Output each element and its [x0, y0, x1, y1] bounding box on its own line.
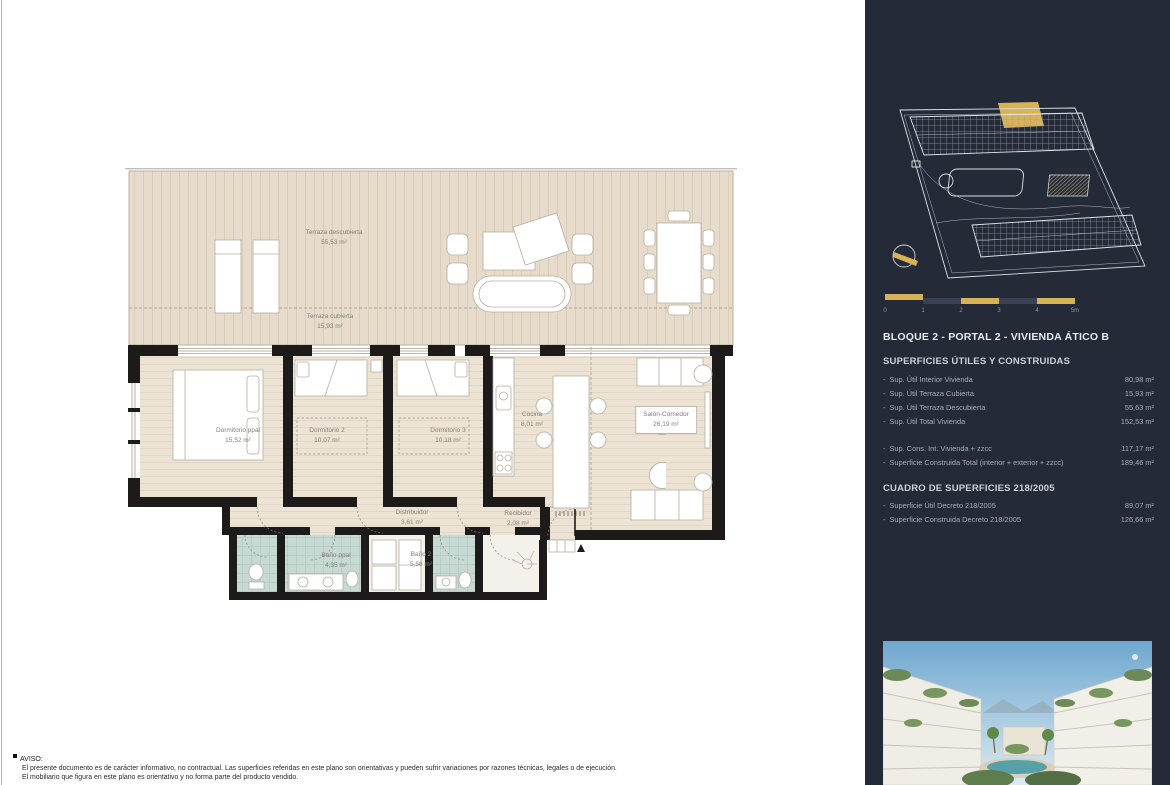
scale-tick: 1: [921, 308, 924, 314]
entry-step: [549, 540, 575, 552]
plan-sheet: Terraza descubierta55,53 m² Terraza cubi…: [0, 0, 1170, 785]
scale-tick: 4: [1035, 308, 1038, 314]
sun-lounger: [215, 240, 241, 313]
toilet: [249, 564, 263, 580]
entry-arrow-icon: [577, 544, 585, 552]
terrace-chair: [572, 263, 593, 284]
room-label-dormitorio-ppal: Dormitorio ppal15,52 m²: [216, 426, 260, 446]
building-block-top: [910, 113, 1094, 155]
area-row: - Superficie Construida Total (interior …: [883, 458, 1154, 467]
floor-plan: Terraza descubierta55,53 m² Terraza cubi…: [125, 168, 737, 608]
dining-table: [657, 223, 701, 303]
left-edge-line: [1, 0, 2, 785]
info-sidebar: 0 1 2 3 4 5m BLOQUE 2 - PORTAL 2 - VIVIE…: [865, 0, 1170, 785]
room-label-terraza-cubierta: Terraza cubierta15,93 m²: [307, 312, 354, 332]
sun-lounger: [253, 240, 279, 313]
tv-console: [705, 392, 710, 448]
terrace-chair: [572, 234, 593, 255]
stool: [590, 432, 606, 448]
side-table: [694, 473, 712, 491]
pillow: [247, 376, 259, 412]
nightstand: [371, 360, 382, 372]
sofa-top: [637, 358, 703, 386]
area-row: - Superficie Construida Decreto 218/2005…: [883, 515, 1154, 524]
area-row: - Sup. Útil Total Vivienda 152,53 m²: [883, 417, 1154, 426]
disclaimer-line: El mobiliario que figura en este plano e…: [22, 773, 773, 782]
unit-title: BLOQUE 2 - PORTAL 2 - VIVIENDA ÁTICO B: [883, 331, 1109, 343]
sofa-bottom: [631, 490, 703, 520]
area-row: - Sup. Útil Terraza Descubierta 55,63 m²: [883, 403, 1154, 412]
island-dining-table: [553, 376, 589, 508]
area-row: - Superficie Útil Decreto 218/2005 89,07…: [883, 501, 1154, 510]
disclaimer-heading: AVISO:: [20, 756, 43, 763]
side-table: [694, 365, 712, 383]
laundry-unit: [372, 566, 396, 590]
laundry-unit: [372, 540, 396, 564]
area-row: - Sup. Útil Interior Vivienda 80,98 m²: [883, 375, 1154, 384]
palm-tree: [1042, 729, 1054, 741]
room-label-salon-comedor: Salón-Comedor26,19 m²: [635, 406, 697, 434]
room-label-bano-2: Baño 25,56 m²: [410, 550, 432, 570]
bullet-square-icon: [13, 754, 17, 758]
scale-bar: 0 1 2 3 4 5m: [885, 294, 1077, 316]
scale-tick: 2: [959, 308, 962, 314]
room-label-recibidor: Recibidor2,08 m²: [504, 509, 531, 529]
terrace-chair: [447, 263, 468, 284]
stool: [590, 398, 606, 414]
double-sink: [289, 574, 343, 590]
building-block-bottom: [972, 215, 1141, 257]
room-label-bano-ppal: Baño ppal4,35 m²: [321, 551, 350, 571]
toilet: [459, 572, 471, 588]
room-label-terraza-descubierta: Terraza descubierta55,53 m²: [305, 228, 362, 248]
floor-plan-drawing: [125, 168, 737, 608]
toilet: [346, 571, 358, 587]
area-row: - Sup. Útil Terraza Cubierta 15,93 m²: [883, 389, 1154, 398]
section-heading-superficies: SUPERFICIES ÚTILES Y CONSTRUIDAS: [883, 356, 1070, 367]
area-row: - Sup. Cons. Int. Vivienda + zzcc 117,17…: [883, 444, 1154, 453]
room-label-dormitorio-2: Dormitorio 210,07 m²: [309, 426, 344, 446]
scale-tick: 0: [883, 308, 886, 314]
palm-tree: [987, 727, 999, 739]
stool: [536, 432, 552, 448]
room-label-cocina: Cocina8,01 m²: [521, 410, 543, 430]
scale-tick: 3: [997, 308, 1000, 314]
north-compass-icon: [893, 245, 918, 267]
terrace-chair: [447, 234, 468, 255]
disclaimer: AVISO: El presente documento es de carác…: [13, 754, 773, 782]
disclaimer-line: El presente documento es de carácter inf…: [22, 764, 773, 773]
site-plan-map: [880, 95, 1150, 290]
room-label-distribuidor: Distribuidor3,61 m²: [396, 508, 429, 528]
room-label-dormitorio-3: Dormitorio 310,18 m²: [430, 426, 465, 446]
scale-tick: 5m: [1071, 308, 1079, 314]
moon-icon: [1132, 654, 1138, 660]
building-render-photo: [883, 641, 1152, 785]
section-heading-cuadro: CUADRO DE SUPERFICIES 218/2005: [883, 483, 1055, 494]
